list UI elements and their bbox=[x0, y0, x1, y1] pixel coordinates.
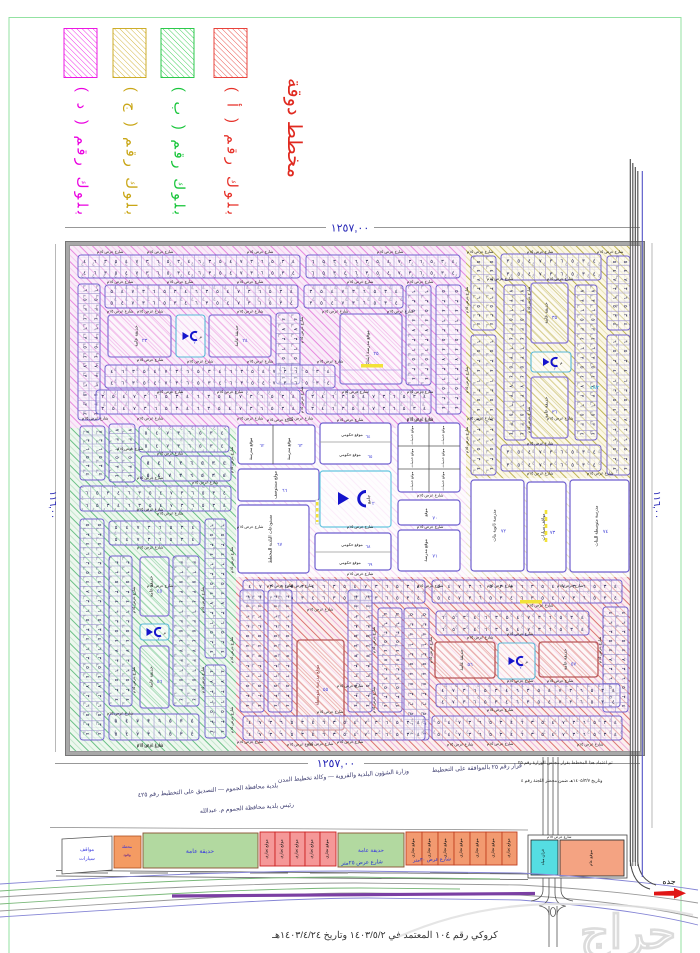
svg-text:شارع عرض ١٥م: شارع عرض ١٥م bbox=[417, 524, 444, 529]
svg-text:شارع عرض ١٥م: شارع عرض ١٥م bbox=[137, 309, 164, 314]
svg-text:موقع تجاري: موقع تجاري bbox=[442, 838, 447, 857]
svg-text:حديقة عامة: حديقة عامة bbox=[358, 847, 385, 854]
svg-text:٤ ٣ ٥ ٦ ٣ ٧ ٤ ٥ ٣ ٦ ٤ ٣ ٥ ٦ ٣: ٤ ٣ ٥ ٦ ٣ ٧ ٤ ٥ ٣ ٦ ٤ ٣ ٥ ٦ ٣ bbox=[191, 561, 197, 701]
svg-text:مستودعات البلدية للمخطط: مستودعات البلدية للمخطط bbox=[268, 515, 273, 563]
svg-text:شارع عرض ١٥م: شارع عرض ١٥م bbox=[187, 359, 214, 364]
svg-text:وقود: وقود bbox=[123, 852, 131, 857]
svg-text:كروكي رقم ١٠٤ المعتمد في ١٤٠٣/: كروكي رقم ١٠٤ المعتمد في ١٤٠٣/٥/٢ وتاريخ… bbox=[271, 930, 498, 941]
svg-text:شارع عرض ١٥م: شارع عرض ١٥م bbox=[107, 711, 134, 716]
svg-text:شارع عرض ١٥م: شارع عرض ١٥م bbox=[464, 366, 469, 393]
svg-text:شارع عرض ١٥م: شارع عرض ١٥م bbox=[299, 316, 304, 343]
svg-text:شارع عرض ١٥م: شارع عرض ١٥م bbox=[97, 249, 124, 254]
svg-text:شارع عرض ١٥م: شارع عرض ١٥م bbox=[237, 524, 264, 529]
svg-text:شارع عرض ١٥م: شارع عرض ١٥م bbox=[307, 607, 334, 612]
svg-text:سيارات: سيارات bbox=[79, 856, 95, 862]
svg-text:٧٤: ٧٤ bbox=[603, 529, 609, 535]
svg-text:شارع عرض ١٥م: شارع عرض ١٥م bbox=[526, 286, 531, 313]
svg-text:موقع خدمات: موقع خدمات bbox=[409, 448, 414, 467]
svg-text:٤ ٣ ٥ ٦ ٣ ٧ ٤ ٥: ٤ ٣ ٥ ٦ ٣ ٧ ٤ ٥ bbox=[475, 261, 481, 326]
svg-text:مواقف: مواقف bbox=[80, 847, 95, 853]
svg-text:٤ ٣ ٥ ٦ ٣ ٧ ٤ ٥ ٣ ٦ ٤ ٣: ٤ ٣ ٥ ٦ ٣ ٧ ٤ ٥ ٣ ٦ ٤ ٣ bbox=[272, 595, 278, 707]
svg-text:شارع عرض ١٥م: شارع عرض ١٥م bbox=[192, 480, 219, 485]
svg-text:شارع عرض ١٥م: شارع عرض ١٥م bbox=[342, 389, 369, 394]
svg-text:موقع خدمات: موقع خدمات bbox=[440, 425, 445, 444]
svg-text:موقع عام: موقع عام bbox=[588, 850, 593, 866]
svg-text:موقع حكومي: موقع حكومي bbox=[339, 560, 361, 565]
svg-text:٤ ٣ ٥ ٦ ٣ ٧ ٤ ٥ ٣ ٦ ٤ ٣: ٤ ٣ ٥ ٦ ٣ ٧ ٤ ٥ ٣ ٦ ٤ ٣ bbox=[284, 595, 290, 707]
svg-text:شارع عرض ١٥م: شارع عرض ١٥م bbox=[447, 742, 474, 747]
svg-text:موقع تجاري: موقع تجاري bbox=[458, 838, 463, 857]
svg-text:شارع عرض ١٥م: شارع عرض ١٥م bbox=[417, 583, 444, 588]
svg-text:موقع حكومي: موقع حكومي bbox=[339, 452, 361, 457]
svg-text:شارع عرض ١٥م: شارع عرض ١٥م bbox=[597, 249, 624, 254]
svg-text:شارع عرض ١٥م: شارع عرض ١٥م bbox=[200, 666, 205, 693]
svg-text:حديقة عامة: حديقة عامة bbox=[134, 325, 139, 346]
svg-text:شارع عرض ١٥م: شارع عرض ١٥م bbox=[464, 286, 469, 313]
svg-text:٦٩: ٦٩ bbox=[368, 562, 373, 567]
svg-text:شارع عرض ١٥م: شارع عرض ١٥م bbox=[137, 545, 164, 550]
svg-text:٤ ٣ ٥ ٦ ٣ ٧ ٤ ٥ ٣ ٦ ٤ ٣: ٤ ٣ ٥ ٦ ٣ ٧ ٤ ٥ ٣ ٦ ٤ ٣ bbox=[311, 406, 426, 412]
svg-text:شارع عرض ١٥م: شارع عرض ١٥م bbox=[557, 583, 584, 588]
svg-text:شارع عرض ١٥م: شارع عرض ١٥م bbox=[107, 309, 134, 314]
svg-text:شارع عرض ١٥م: شارع عرض ١٥م bbox=[527, 471, 554, 476]
svg-text:٢٥: ٢٥ bbox=[373, 351, 379, 357]
svg-text:شارع عرض ١٥م: شارع عرض ١٥م bbox=[526, 406, 531, 433]
svg-text:٦٢: ٦٢ bbox=[260, 443, 265, 448]
svg-text:٤ ٣ ٥ ٦ ٣ ٧ ٤ ٥ ٣: ٤ ٣ ٥ ٦ ٣ ٧ ٤ ٥ ٣ bbox=[507, 259, 596, 265]
svg-text:١١٦,٠٠: ١١٦,٠٠ bbox=[47, 491, 58, 519]
svg-text:٤ ٣ ٥ ٦ ٣ ٧ ٤ ٥ ٣ ٦ ٤ ٣ ٥ ٦ ٣: ٤ ٣ ٥ ٦ ٣ ٧ ٤ ٥ ٣ ٦ ٤ ٣ ٥ ٦ ٣ bbox=[124, 561, 130, 701]
svg-text:شارع عرض ١٥م: شارع عرض ١٥م bbox=[137, 742, 164, 747]
svg-text:٤ ٣ ٥ ٦ ٣ ٧ ٤ ٥ ٣: ٤ ٣ ٥ ٦ ٣ ٧ ٤ ٥ ٣ bbox=[507, 450, 596, 456]
svg-text:شارع عرض ١٥م: شارع عرض ١٥م bbox=[82, 416, 109, 421]
svg-text:موقع خدمات: موقع خدمات bbox=[440, 448, 445, 467]
svg-text:٤٧/٢: ٤٧/٢ bbox=[590, 385, 600, 391]
svg-text:١٢٥٧,٠٠: ١٢٥٧,٠٠ bbox=[331, 223, 370, 235]
svg-text:شارع عرض ١٥م: شارع عرض ١٥م bbox=[377, 249, 404, 254]
svg-text:بلوك رقم ( د ): بلوك رقم ( د ) bbox=[74, 87, 90, 215]
svg-text:موقع تجاري: موقع تجاري bbox=[309, 839, 314, 858]
svg-text:شارع عرض ١٥م: شارع عرض ١٥م bbox=[157, 511, 184, 516]
svg-text:شارع عرض ١٥م: شارع عرض ١٥م bbox=[577, 742, 604, 747]
svg-text:حديقة عامة: حديقة عامة bbox=[234, 325, 239, 346]
svg-text:شارع عرض ١٥م: شارع عرض ١٥م bbox=[299, 386, 304, 413]
svg-text:شارع عرض ١٥م: شارع عرض ١٥م bbox=[547, 416, 574, 421]
svg-text:٤ ٣ ٥ ٦ ٣ ٧ ٤ ٥: ٤ ٣ ٥ ٦ ٣ ٧ ٤ ٥ bbox=[147, 460, 226, 466]
svg-text:٢٣: ٢٣ bbox=[142, 338, 148, 344]
svg-text:٤ ٣ ٥ ٦ ٣ ٧ ٤ ٥: ٤ ٣ ٥ ٦ ٣ ٧ ٤ ٥ bbox=[115, 537, 195, 543]
svg-text:٧٣: ٧٣ bbox=[550, 530, 556, 536]
svg-text:٤ ٣ ٥ ٦ ٣ ٧ ٤ ٥ ٣ ٦ ٤ ٣: ٤ ٣ ٥ ٦ ٣ ٧ ٤ ٥ ٣ ٦ ٤ ٣ bbox=[364, 595, 370, 707]
svg-text:٢: ٢ bbox=[554, 366, 556, 371]
svg-text:مدرسة متوسطة للبنات: مدرسة متوسطة للبنات bbox=[594, 506, 599, 547]
svg-text:شارع عرض ١٥م: شارع عرض ١٥م bbox=[267, 583, 294, 588]
svg-text:شارع عرض ١٥م: شارع عرض ١٥م bbox=[507, 631, 534, 636]
svg-text:موقع مدرسة: موقع مدرسة bbox=[286, 438, 291, 461]
svg-text:٧٢: ٧٢ bbox=[501, 529, 507, 535]
svg-text:٤ ٣ ٥ ٦ ٣ ٧ ٤ ٥ ٣ ٦ ٤ ٣: ٤ ٣ ٥ ٦ ٣ ٧ ٤ ٥ ٣ ٦ ٤ ٣ bbox=[311, 394, 426, 400]
svg-text:شارع عرض ١٥م: شارع عرض ١٥م bbox=[229, 546, 234, 573]
svg-text:حديقة عامة: حديقة عامة bbox=[544, 302, 549, 323]
svg-text:شارع عرض ١٥م: شارع عرض ١٥م bbox=[317, 709, 344, 714]
svg-text:شارع عرض ١٥م: شارع عرض ١٥م bbox=[371, 626, 376, 653]
svg-text:حديقة عامة: حديقة عامة bbox=[149, 666, 154, 687]
svg-text:١١٦,٠٠: ١١٦,٠٠ bbox=[651, 491, 662, 519]
svg-text:شارع عرض ١٥م: شارع عرض ١٥م bbox=[157, 451, 184, 456]
svg-text:شارع عرض ١٥م: شارع عرض ١٥م bbox=[317, 359, 344, 364]
svg-text:شارع عرض ١٥م: شارع عرض ١٥م bbox=[322, 309, 349, 314]
svg-text:٤ ٣ ٥ ٦ ٣ ٧ ٤ ٥ ٣ ٦ ٤ ٣ ٥ ٦ ٣: ٤ ٣ ٥ ٦ ٣ ٧ ٤ ٥ ٣ ٦ ٤ ٣ ٥ ٦ ٣ ٧ ٤ ٥ ٣ ٦ … bbox=[111, 380, 330, 386]
svg-text:٥٥: ٥٥ bbox=[323, 687, 329, 693]
svg-text:شارع عرض ١٥م: شارع عرض ١٥م bbox=[467, 416, 494, 421]
svg-text:حديقة عامة: حديقة عامة bbox=[186, 848, 215, 855]
svg-text:٤ ٣ ٥ ٦ ٣ ٧ ٤ ٥: ٤ ٣ ٥ ٦ ٣ ٧ ٤ ٥ bbox=[488, 261, 494, 326]
svg-text:٤٥: ٤٥ bbox=[157, 589, 163, 595]
svg-text:موقع مدرسة: موقع مدرسة bbox=[248, 438, 253, 461]
svg-text:موقع تجاري: موقع تجاري bbox=[324, 839, 329, 858]
svg-text:٥٦: ٥٦ bbox=[467, 662, 473, 668]
svg-text:شارع عرض ١٥م: شارع عرض ١٥م bbox=[464, 426, 469, 453]
svg-text:٦٥: ٦٥ bbox=[368, 454, 373, 459]
svg-text:شارع عرض ١٥م: شارع عرض ١٥م bbox=[131, 586, 136, 613]
svg-text:شارع عرض ١٥م: شارع عرض ١٥م bbox=[237, 416, 264, 421]
svg-text:شارع عرض ١٥م: شارع عرض ١٥م bbox=[467, 249, 494, 254]
svg-text:شارع عرض ١٥م: شارع عرض ١٥م bbox=[407, 389, 434, 394]
svg-text:٤ ٣ ٥ ٦ ٣ ٧ ٤ ٥ ٣ ٦ ٤ ٣: ٤ ٣ ٥ ٦ ٣ ٧ ٤ ٥ ٣ ٦ ٤ ٣ bbox=[256, 595, 262, 707]
svg-text:٧٠: ٧٠ bbox=[432, 516, 437, 522]
svg-text:٥٧: ٥٧ bbox=[571, 662, 577, 668]
svg-text:مخطط دوقة: مخطط دوقة bbox=[283, 78, 305, 178]
svg-text:شارع عرض ١٥م: شارع عرض ١٥م bbox=[147, 249, 174, 254]
svg-text:شارع عرض ١٥م: شارع عرض ١٥م bbox=[147, 583, 174, 588]
svg-text:موقع حكومي: موقع حكومي bbox=[341, 432, 363, 437]
svg-text:٦٦: ٦٦ bbox=[282, 488, 288, 494]
svg-text:٤ ٣ ٥ ٦ ٣ ٧ ٤ ٥ ٣ ٦ ٤ ٣ ٥ ٦ ٣: ٤ ٣ ٥ ٦ ٣ ٧ ٤ ٥ ٣ ٦ ٤ ٣ ٥ ٦ ٣ ٧ ٤ ٥ ٣ ٦ … bbox=[111, 369, 330, 375]
svg-text:حديقة عامة: حديقة عامة bbox=[459, 649, 464, 670]
svg-text:شارع عرض ١٥م: شارع عرض ١٥م bbox=[428, 636, 433, 663]
svg-text:٤٦: ٤٦ bbox=[157, 679, 163, 685]
svg-text:مدرسة ثانوية بنات: مدرسة ثانوية بنات bbox=[492, 509, 497, 541]
svg-text:شارع عرض ١٥م: شارع عرض ١٥م bbox=[287, 742, 314, 747]
svg-text:شارع عرض ١٥م: شارع عرض ١٥م bbox=[527, 441, 554, 446]
svg-text:شارع عرض ١٥م: شارع عرض ١٥م bbox=[407, 279, 434, 284]
svg-text:٢: ٢ bbox=[194, 340, 196, 345]
svg-text:شارع عرض ١٥م: شارع عرض ١٥م bbox=[337, 683, 364, 688]
svg-text:موقع تجاري: موقع تجاري bbox=[264, 839, 269, 858]
svg-text:شارع عرض ١٥م: شارع عرض ١٥م bbox=[487, 583, 514, 588]
svg-text:٤ ٣ ٥ ٦ ٣ ٧ ٤ ٥ ٣ ٦ ٤ ٣ ٥ ٦ ٣: ٤ ٣ ٥ ٦ ٣ ٧ ٤ ٥ ٣ ٦ ٤ ٣ ٥ ٦ ٣ ٧ ٤ ٥ ٣ ٦ … bbox=[83, 270, 295, 276]
svg-text:حديقة عامة: حديقة عامة bbox=[563, 649, 568, 670]
svg-text:١٢٥٧,٠٠: ١٢٥٧,٠٠ bbox=[317, 758, 356, 770]
svg-text:شارع عرض ١٥م: شارع عرض ١٥م bbox=[487, 707, 514, 712]
svg-text:٤ ٣ ٥ ٦ ٣ ٧ ٤ ٥: ٤ ٣ ٥ ٦ ٣ ٧ ٤ ٥ bbox=[115, 732, 194, 738]
svg-text:٦٣: ٦٣ bbox=[298, 443, 303, 448]
svg-text:٤ ٣ ٥ ٦ ٣ ٧ ٤ ٥: ٤ ٣ ٥ ٦ ٣ ٧ ٤ ٥ bbox=[115, 719, 194, 725]
svg-text:شارع عرض ١٥م: شارع عرض ١٥م bbox=[587, 471, 614, 476]
svg-text:شارع عرض ١٥م: شارع عرض ١٥م bbox=[371, 686, 376, 713]
svg-text:شارع عرض ١٥م: شارع عرض ١٥م bbox=[507, 678, 534, 683]
svg-text:شارع عرض ١٥م: شارع عرض ١٥م bbox=[387, 309, 414, 314]
svg-text:موقع تجاري: موقع تجاري bbox=[410, 838, 415, 857]
svg-text:حراج: حراج bbox=[580, 906, 676, 953]
svg-text:٦٨: ٦٨ bbox=[366, 544, 371, 549]
svg-text:موقع خدمات: موقع خدمات bbox=[409, 471, 414, 490]
svg-text:شارع عرض ١٥م: شارع عرض ١٥م bbox=[137, 357, 164, 362]
svg-text:شارع عرض ١٥م: شارع عرض ١٥م bbox=[200, 586, 205, 613]
svg-text:شارع عرض ١٥م: شارع عرض ١٥م bbox=[527, 249, 554, 254]
svg-text:شارع عرض ١٥م: شارع عرض ١٥م bbox=[547, 834, 573, 839]
svg-text:موقع تجاري: موقع تجاري bbox=[294, 839, 299, 858]
svg-text:بلوك رقم ( أ ): بلوك رقم ( أ ) bbox=[224, 87, 243, 215]
svg-text:موقع تجاري: موقع تجاري bbox=[426, 838, 431, 857]
svg-text:موقع تجاري: موقع تجاري bbox=[474, 838, 479, 857]
svg-text:شارع عرض ١٥م: شارع عرض ١٥م bbox=[157, 389, 184, 394]
svg-text:موقع مستوصف: موقع مستوصف bbox=[273, 471, 278, 499]
svg-text:٤ ٣ ٥ ٦ ٣ ٧ ٤ ٥: ٤ ٣ ٥ ٦ ٣ ٧ ٤ ٥ bbox=[622, 261, 628, 326]
svg-text:جده: جده bbox=[662, 877, 675, 886]
svg-text:شارع عرض ١٥م: شارع عرض ١٥م bbox=[131, 666, 136, 693]
svg-text:موقع خدمات: موقع خدمات bbox=[440, 471, 445, 490]
svg-text:٤ ٣ ٥ ٦ ٣ ٧ ٤ ٥: ٤ ٣ ٥ ٦ ٣ ٧ ٤ ٥ bbox=[145, 444, 224, 450]
svg-text:٢: ٢ bbox=[158, 636, 160, 641]
svg-text:٤ ٣ ٥ ٦ ٣ ٧ ٤ ٥: ٤ ٣ ٥ ٦ ٣ ٧ ٤ ٥ bbox=[115, 525, 195, 531]
svg-text:شارع عرض ١٥م: شارع عرض ١٥م bbox=[417, 493, 444, 498]
svg-text:٧١: ٧١ bbox=[432, 554, 437, 560]
svg-text:شارع عرض ١٥م: شارع عرض ١٥م bbox=[337, 417, 364, 422]
svg-text:شارع عرض ١٥م: شارع عرض ١٥م bbox=[237, 279, 264, 284]
svg-text:٢: ٢ bbox=[520, 665, 522, 670]
svg-text:موقع خدمات: موقع خدمات bbox=[409, 425, 414, 444]
svg-text:شارع عرض ١٥م: شارع عرض ١٥م bbox=[137, 416, 164, 421]
svg-text:٤ ٣ ٥ ٦ ٣ ٧ ٤ ٥ ٣ ٦ ٤ ٣ ٥ ٦ ٣: ٤ ٣ ٥ ٦ ٣ ٧ ٤ ٥ ٣ ٦ ٤ ٣ ٥ ٦ ٣ bbox=[113, 561, 119, 701]
svg-text:شارع عرض ١٥م: شارع عرض ١٥م bbox=[597, 636, 602, 663]
svg-text:٦٧: ٦٧ bbox=[277, 542, 283, 548]
svg-text:محطة: محطة bbox=[122, 844, 132, 849]
svg-text:شارع عرض ١٥م: شارع عرض ١٥م bbox=[247, 249, 274, 254]
svg-text:موقع تجاري: موقع تجاري bbox=[506, 838, 511, 857]
svg-text:خزان مياه: خزان مياه bbox=[540, 848, 545, 865]
svg-text:٤ ٣ ٥ ٦ ٣ ٧ ٤ ٥: ٤ ٣ ٥ ٦ ٣ ٧ ٤ ٥ bbox=[145, 431, 224, 437]
svg-text:شارع عرض ١٥م: شارع عرض ١٥م bbox=[547, 678, 574, 683]
svg-text:شارع عرض ١٥م: شارع عرض ١٥م bbox=[117, 446, 144, 451]
svg-text:شارع عرض ١٥م: شارع عرض ١٥م bbox=[407, 417, 434, 422]
svg-text:شارع عرض ١٥م: شارع عرض ١٥م bbox=[237, 309, 264, 314]
svg-text:بلوك رقم ( ب ): بلوك رقم ( ب ) bbox=[171, 87, 187, 215]
svg-text:موقع حكومي: موقع حكومي bbox=[341, 542, 363, 547]
svg-text:٦٤: ٦٤ bbox=[366, 434, 371, 439]
svg-text:شارع عرض ١٥م: شارع عرض ١٥م bbox=[229, 446, 234, 473]
svg-text:شارع عرض ١٥م: شارع عرض ١٥م bbox=[267, 417, 294, 422]
svg-text:٤ ٣ ٥ ٦ ٣ ٧ ٤ ٥ ٣ ٦ ٤ ٣ ٥ ٦ ٣: ٤ ٣ ٥ ٦ ٣ ٧ ٤ ٥ ٣ ٦ ٤ ٣ ٥ ٦ ٣ ٧ ٤ ٥ ٣ ٦ … bbox=[83, 259, 295, 265]
svg-text:شارع عرض ١٥م: شارع عرض ١٥م bbox=[467, 635, 494, 640]
svg-text:موقع تجاري: موقع تجاري bbox=[490, 838, 495, 857]
svg-text:شارع عرض ١٥م: شارع عرض ١٥م bbox=[487, 741, 514, 746]
svg-text:٢: ٢ bbox=[372, 501, 375, 507]
svg-text:شارع عرض ١٥م: شارع عرض ١٥م bbox=[487, 276, 514, 281]
svg-text:موقع مدرسة: موقع مدرسة bbox=[423, 539, 428, 562]
svg-text:شارع عرض ١٥م: شارع عرض ١٥م bbox=[547, 276, 574, 281]
svg-text:بلوك رقم ( ج ): بلوك رقم ( ج ) bbox=[123, 87, 139, 215]
svg-text:٢٤: ٢٤ bbox=[242, 338, 248, 344]
svg-text:٤ ٣ ٥ ٦ ٣ ٧ ٤ ٥ ٣: ٤ ٣ ٥ ٦ ٣ ٧ ٤ ٥ ٣ bbox=[310, 289, 398, 295]
svg-text:٤ ٣ ٥ ٦ ٣ ٧ ٤ ٥ ٣ ٦ ٤ ٣: ٤ ٣ ٥ ٦ ٣ ٧ ٤ ٥ ٣ ٦ ٤ ٣ bbox=[244, 595, 250, 707]
svg-text:شارع عرض ١٥م: شارع عرض ١٥م bbox=[347, 279, 374, 284]
svg-text:شارع عرض ١٥م: شارع عرض ١٥م bbox=[229, 706, 234, 733]
svg-text:شارع عرض ١٥م: شارع عرض ١٥م bbox=[167, 279, 194, 284]
svg-text:شارع عرض ١٥م: شارع عرض ١٥م bbox=[237, 739, 264, 744]
svg-text:شارع عرض ١٥م: شارع عرض ١٥م bbox=[527, 603, 554, 608]
svg-text:شارع عرض ١٥م: شارع عرض ١٥م bbox=[247, 359, 274, 364]
svg-text:موقع تجاري: موقع تجاري bbox=[279, 839, 284, 858]
svg-text:شارع عرض ١٥م: شارع عرض ١٥م bbox=[217, 389, 244, 394]
svg-text:شارع عرض ١٥م: شارع عرض ١٥م bbox=[137, 475, 164, 480]
svg-text:٤ ٣ ٥ ٦ ٣ ٧ ٤ ٥ ٣ ٦ ٤ ٣ ٥ ٦ ٣: ٤ ٣ ٥ ٦ ٣ ٧ ٤ ٥ ٣ ٦ ٤ ٣ ٥ ٦ ٣ bbox=[178, 561, 184, 701]
svg-text:شارع عرض ١٥م: شارع عرض ١٥م bbox=[347, 571, 374, 576]
svg-text:٤ ٣ ٥ ٦ ٣ ٧ ٤ ٥ ٣: ٤ ٣ ٥ ٦ ٣ ٧ ٤ ٥ ٣ bbox=[507, 463, 596, 469]
svg-text:شارع عرض ١٥م: شارع عرض ١٥م bbox=[337, 739, 364, 744]
svg-text:شارع عرض ١٥م: شارع عرض ١٥م bbox=[347, 524, 374, 529]
svg-text:شارع عرض ١٥م: شارع عرض ١٥م bbox=[107, 279, 134, 284]
svg-text:٣٥: ٣٥ bbox=[552, 315, 558, 321]
svg-text:شارع عرض ١٥م: شارع عرض ١٥م bbox=[229, 636, 234, 663]
svg-text:٤ ٣ ٥ ٦ ٣ ٧ ٤ ٥ ٣ ٦ ٤ ٣: ٤ ٣ ٥ ٦ ٣ ٧ ٤ ٥ ٣ ٦ ٤ ٣ bbox=[352, 595, 358, 707]
svg-text:٤ ٣ ٥ ٦ ٣ ٧ ٤ ٥: ٤ ٣ ٥ ٦ ٣ ٧ ٤ ٥ bbox=[611, 261, 617, 326]
svg-text:موقع: موقع bbox=[423, 508, 428, 516]
svg-text:٤ ٣ ٥ ٦ ٣ ٧ ٤ ٥ ٣: ٤ ٣ ٥ ٦ ٣ ٧ ٤ ٥ ٣ bbox=[310, 300, 398, 306]
